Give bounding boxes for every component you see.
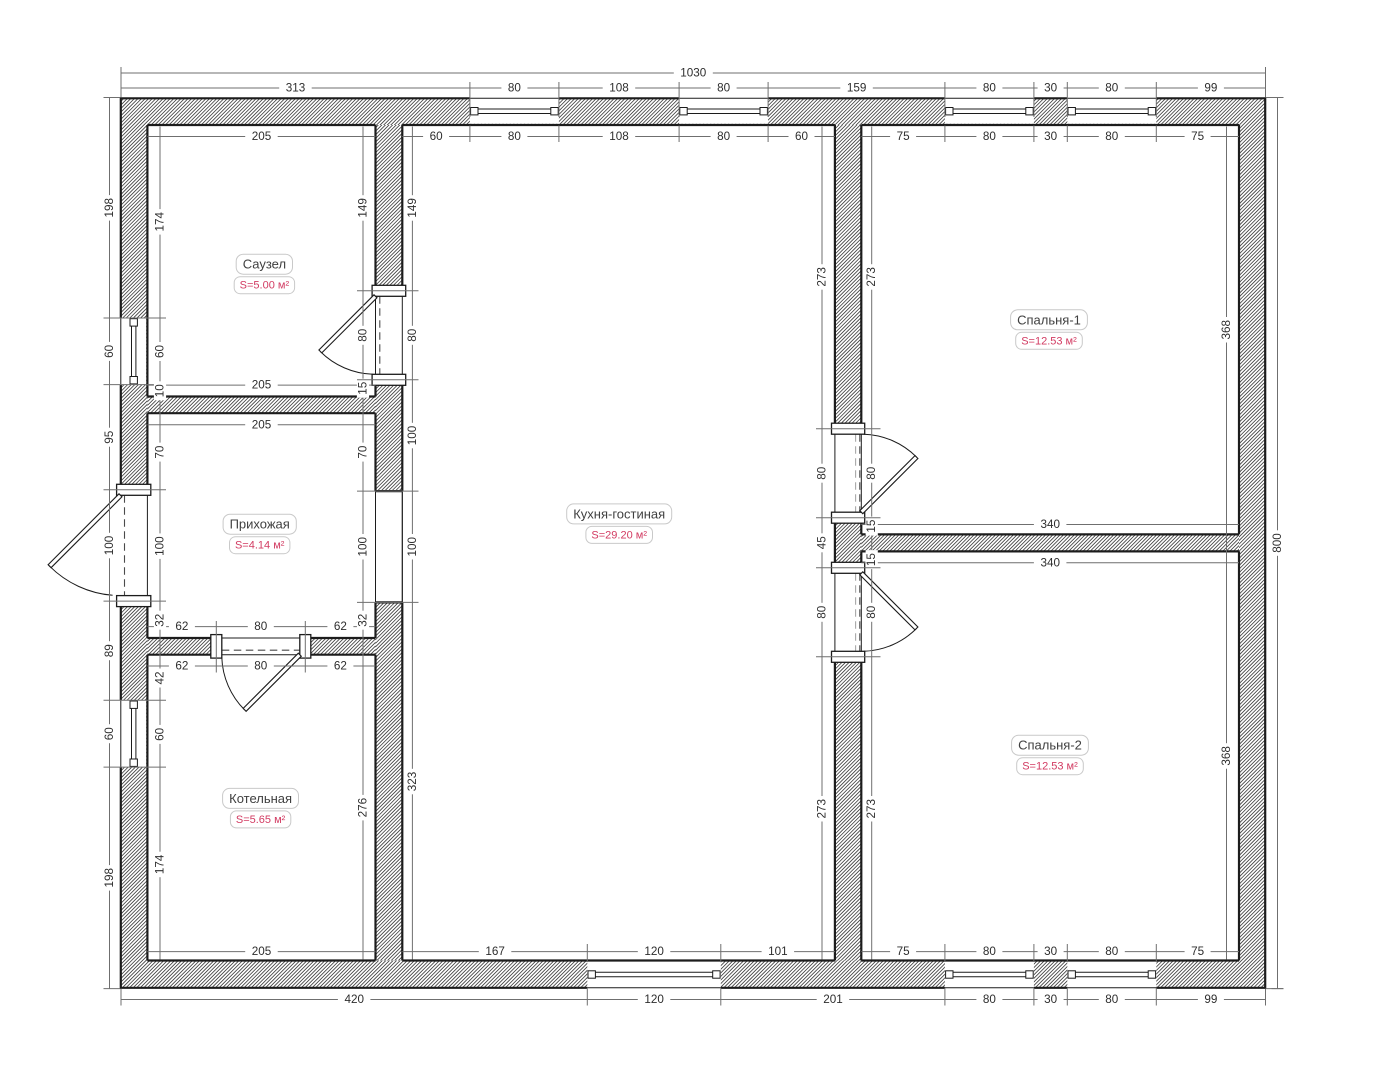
svg-text:62: 62 [334, 620, 347, 633]
svg-text:108: 108 [609, 82, 629, 95]
svg-text:80: 80 [357, 328, 370, 342]
svg-text:99: 99 [1204, 993, 1217, 1006]
svg-text:80: 80 [406, 328, 419, 342]
svg-text:201: 201 [823, 993, 843, 1006]
svg-text:100: 100 [357, 536, 370, 556]
svg-text:60: 60 [795, 130, 809, 143]
svg-text:42: 42 [154, 671, 167, 684]
svg-text:800: 800 [1271, 533, 1284, 553]
svg-text:80: 80 [865, 466, 878, 480]
svg-text:80: 80 [1105, 82, 1119, 95]
svg-text:S=4.14 м²: S=4.14 м² [235, 540, 285, 552]
svg-text:80: 80 [816, 605, 829, 619]
svg-text:108: 108 [609, 130, 629, 143]
svg-text:99: 99 [1204, 82, 1217, 95]
svg-text:Спальня-1: Спальня-1 [1017, 312, 1081, 327]
svg-text:30: 30 [1044, 130, 1058, 143]
svg-text:313: 313 [286, 82, 306, 95]
svg-text:205: 205 [252, 130, 272, 143]
svg-text:100: 100 [406, 425, 419, 445]
svg-text:80: 80 [865, 605, 878, 619]
svg-text:159: 159 [847, 82, 867, 95]
svg-text:100: 100 [103, 535, 116, 555]
svg-text:273: 273 [865, 799, 878, 819]
svg-text:Спальня-2: Спальня-2 [1018, 738, 1082, 753]
svg-text:S=5.65 м²: S=5.65 м² [236, 814, 286, 826]
svg-text:174: 174 [154, 212, 167, 232]
svg-text:80: 80 [983, 993, 997, 1006]
svg-text:80: 80 [508, 82, 522, 95]
svg-text:Прихожая: Прихожая [230, 517, 290, 532]
svg-text:S=12.53 м²: S=12.53 м² [1022, 761, 1078, 773]
svg-text:100: 100 [154, 536, 167, 556]
svg-text:273: 273 [816, 799, 829, 819]
svg-text:Кухня-гостиная: Кухня-гостиная [573, 506, 665, 521]
svg-text:75: 75 [1191, 130, 1205, 143]
svg-text:174: 174 [154, 854, 167, 874]
svg-text:80: 80 [816, 466, 829, 480]
svg-text:80: 80 [983, 82, 997, 95]
svg-text:80: 80 [717, 130, 731, 143]
svg-text:32: 32 [357, 614, 370, 627]
svg-text:80: 80 [1105, 130, 1119, 143]
svg-text:80: 80 [254, 620, 268, 633]
svg-text:75: 75 [897, 945, 911, 958]
svg-text:149: 149 [357, 198, 370, 218]
svg-text:420: 420 [344, 993, 364, 1006]
svg-text:100: 100 [406, 536, 419, 556]
svg-text:62: 62 [175, 660, 188, 673]
svg-text:30: 30 [1044, 993, 1058, 1006]
svg-text:276: 276 [357, 798, 370, 818]
svg-text:75: 75 [1191, 945, 1205, 958]
svg-text:30: 30 [1044, 82, 1058, 95]
svg-text:15: 15 [357, 381, 370, 395]
svg-text:80: 80 [508, 130, 522, 143]
svg-text:80: 80 [254, 660, 268, 673]
svg-text:95: 95 [103, 430, 116, 444]
svg-text:273: 273 [865, 267, 878, 287]
svg-text:62: 62 [175, 620, 188, 633]
svg-text:70: 70 [154, 445, 167, 459]
svg-text:198: 198 [103, 868, 116, 888]
svg-text:60: 60 [154, 345, 167, 359]
svg-text:167: 167 [485, 945, 505, 958]
svg-text:15: 15 [865, 519, 878, 533]
svg-text:89: 89 [103, 644, 116, 657]
svg-text:120: 120 [644, 993, 664, 1006]
svg-text:1030: 1030 [680, 67, 707, 80]
svg-text:15: 15 [865, 553, 878, 567]
svg-text:60: 60 [154, 727, 167, 741]
svg-text:32: 32 [154, 614, 167, 627]
svg-text:120: 120 [644, 945, 664, 958]
svg-text:30: 30 [1044, 945, 1058, 958]
svg-text:368: 368 [1220, 746, 1233, 766]
svg-text:80: 80 [717, 82, 731, 95]
svg-text:60: 60 [430, 130, 444, 143]
svg-text:62: 62 [334, 660, 347, 673]
svg-text:340: 340 [1040, 518, 1060, 531]
svg-text:323: 323 [406, 772, 419, 792]
svg-text:S=29.20 м²: S=29.20 м² [591, 529, 647, 541]
svg-text:80: 80 [983, 130, 997, 143]
svg-text:S=5.00 м²: S=5.00 м² [240, 280, 290, 292]
svg-text:205: 205 [252, 379, 272, 392]
svg-text:Котельная: Котельная [229, 791, 292, 806]
svg-text:75: 75 [897, 130, 911, 143]
svg-text:80: 80 [1105, 993, 1119, 1006]
svg-text:340: 340 [1040, 556, 1060, 569]
svg-text:45: 45 [816, 536, 829, 550]
svg-text:101: 101 [768, 945, 788, 958]
svg-text:368: 368 [1220, 320, 1233, 340]
svg-text:198: 198 [103, 198, 116, 218]
svg-text:273: 273 [816, 267, 829, 287]
svg-text:205: 205 [252, 945, 272, 958]
svg-text:80: 80 [983, 945, 997, 958]
svg-text:205: 205 [252, 418, 272, 431]
svg-text:70: 70 [357, 445, 370, 459]
svg-text:80: 80 [1105, 945, 1119, 958]
svg-text:S=12.53 м²: S=12.53 м² [1021, 335, 1077, 347]
svg-text:149: 149 [406, 198, 419, 218]
svg-text:10: 10 [154, 384, 167, 398]
svg-text:60: 60 [103, 727, 116, 741]
svg-text:Саузел: Саузел [243, 257, 286, 272]
svg-text:60: 60 [103, 344, 116, 358]
